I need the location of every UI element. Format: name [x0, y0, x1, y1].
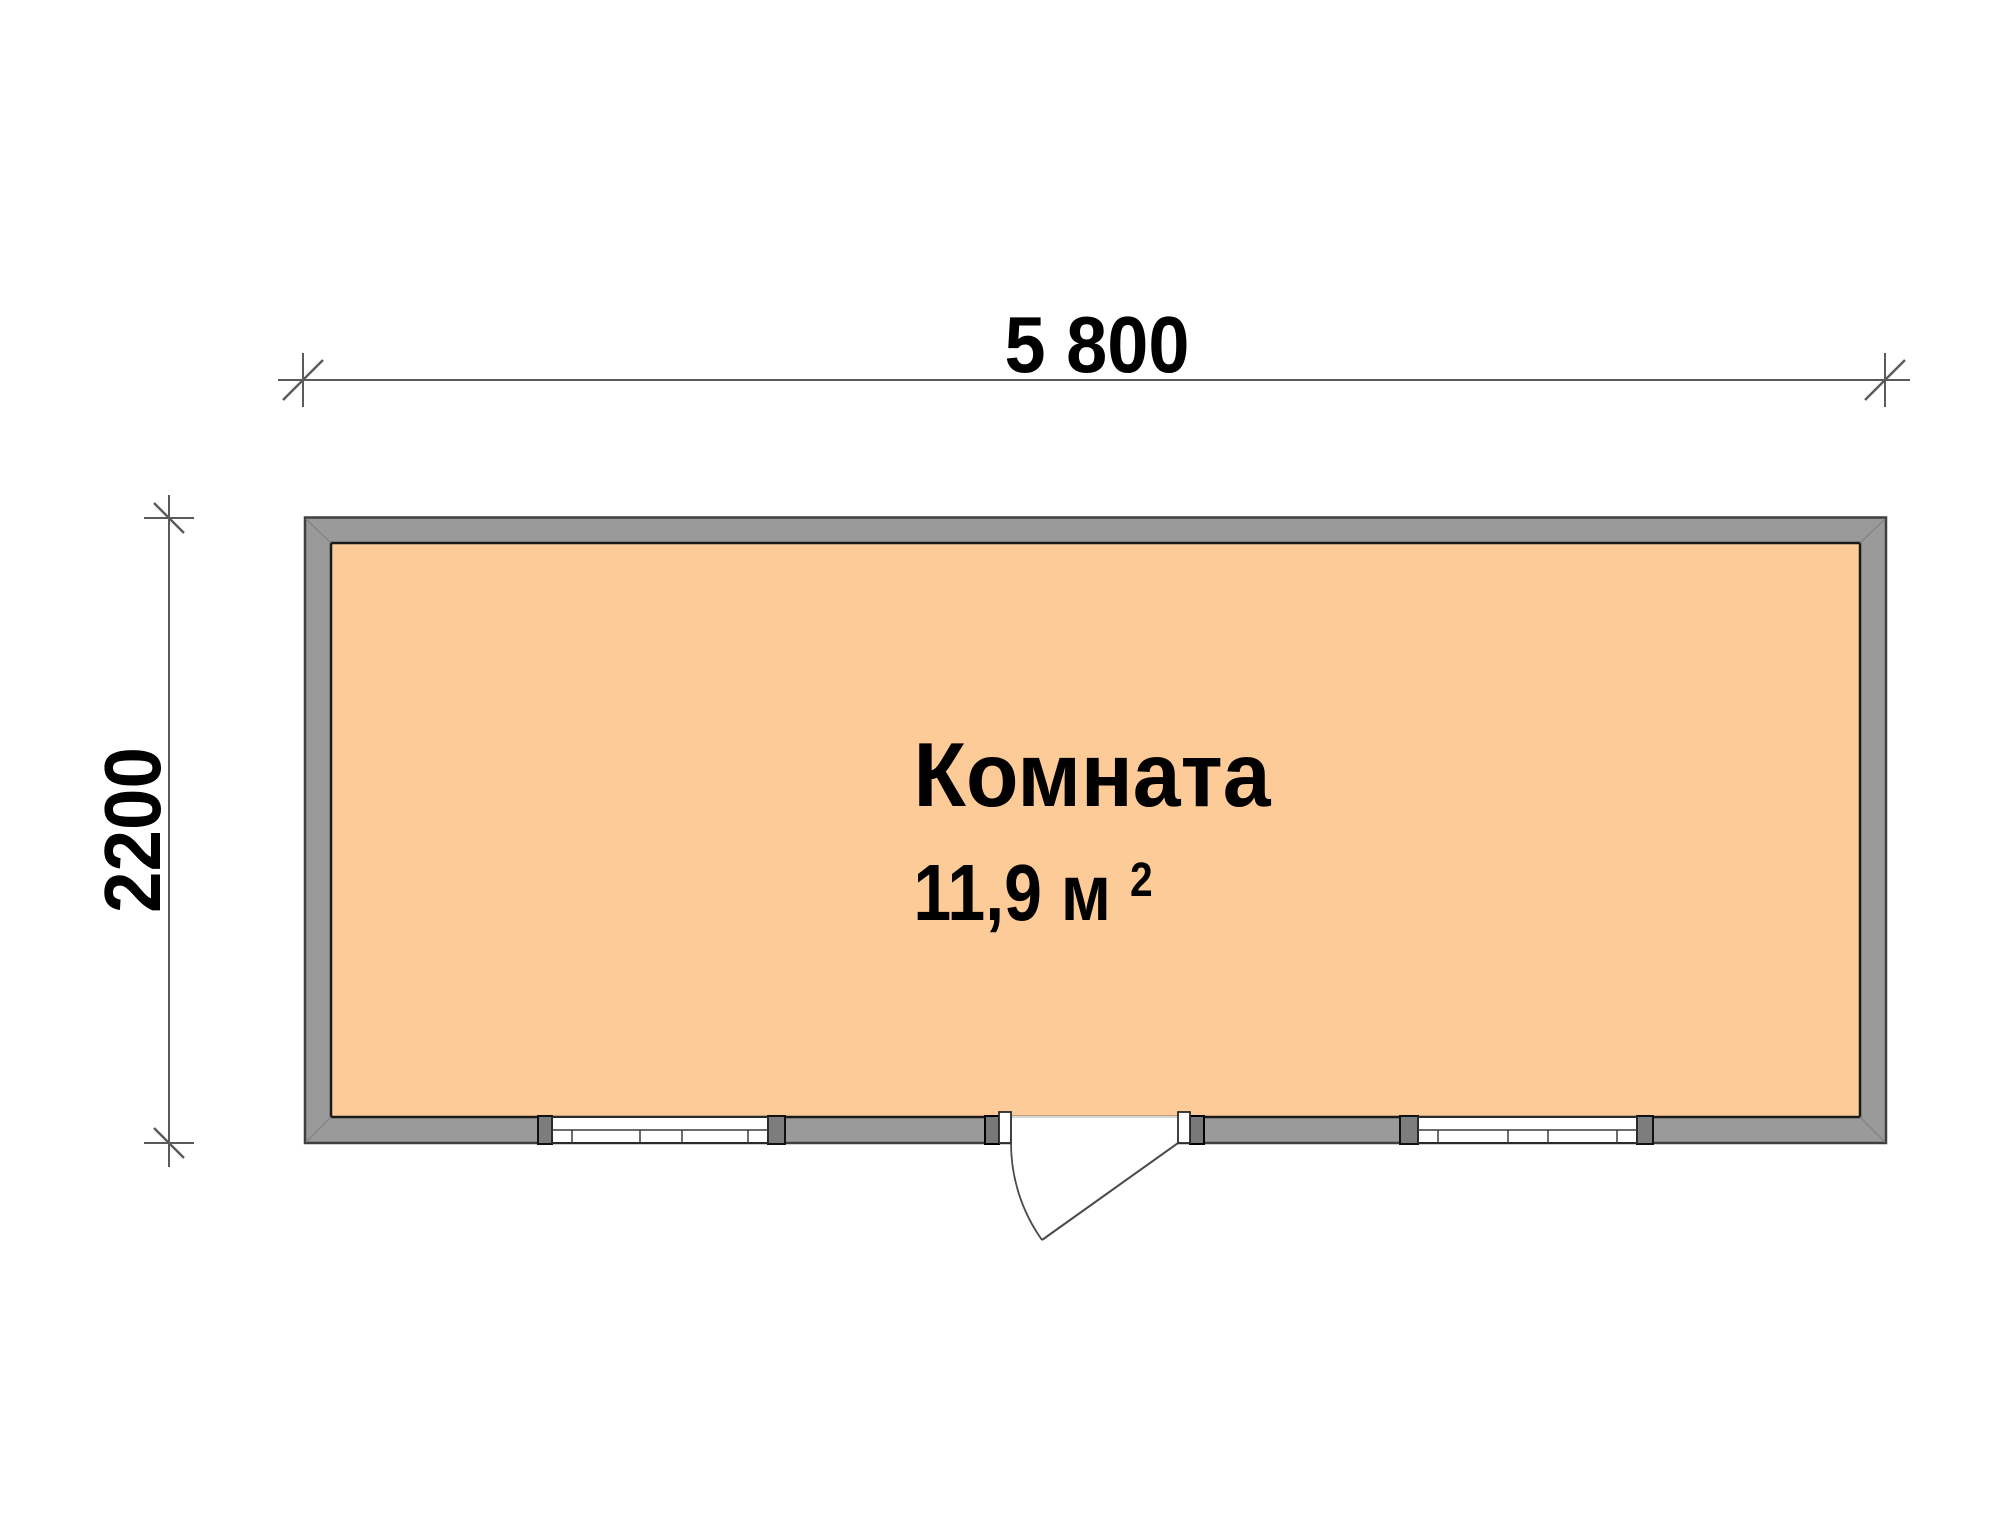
room-area-value: 11,9 м — [913, 848, 1111, 937]
window-jamb — [538, 1116, 552, 1144]
window-jamb — [1400, 1116, 1418, 1144]
room-area-label: 11,9 м 2 — [913, 848, 1152, 937]
dimension-height: 2200 — [88, 495, 194, 1167]
door — [985, 1112, 1204, 1240]
dimension-height-value: 2200 — [88, 747, 177, 913]
door-wall-cap — [985, 1116, 999, 1144]
door-jamb — [1178, 1112, 1190, 1143]
dimension-width: 5 800 — [278, 300, 1910, 407]
room — [305, 518, 1886, 1144]
floor-plan-canvas: 5 800 2200 Комната 11,9 м 2 — [0, 0, 2000, 1538]
window-left — [538, 1116, 785, 1144]
door-wall-cap — [1190, 1116, 1204, 1144]
window-jamb — [1637, 1116, 1653, 1144]
room-area-exponent: 2 — [1130, 854, 1153, 907]
door-opening — [1011, 1116, 1178, 1145]
room-name-label: Комната — [914, 725, 1272, 826]
door-swing-arc — [1011, 1143, 1042, 1240]
door-leaf — [1042, 1143, 1178, 1240]
floor-plan-drawing: 5 800 2200 Комната 11,9 м 2 — [0, 0, 2000, 1538]
dimension-width-value: 5 800 — [1005, 300, 1190, 389]
window-right — [1400, 1116, 1653, 1144]
window-jamb — [768, 1116, 785, 1144]
door-jamb — [999, 1112, 1011, 1143]
room-floor — [331, 543, 1860, 1117]
